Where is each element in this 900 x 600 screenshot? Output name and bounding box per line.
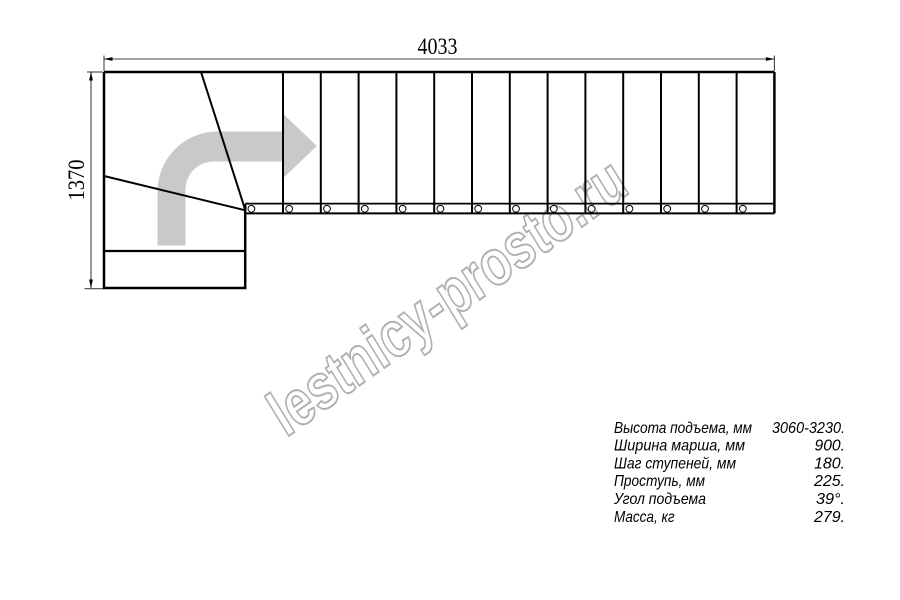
- svg-text:3060-3230.: 3060-3230.: [772, 420, 845, 437]
- svg-text:Масса, кг: Масса, кг: [614, 509, 675, 526]
- svg-text:225.: 225.: [813, 473, 845, 490]
- svg-text:39°.: 39°.: [816, 491, 845, 508]
- svg-text:900.: 900.: [815, 438, 846, 455]
- svg-text:Угол подъема: Угол подъема: [613, 491, 706, 508]
- svg-text:Высота подъема, мм: Высота подъема, мм: [614, 420, 752, 437]
- svg-text:Шаг ступеней, мм: Шаг ступеней, мм: [614, 455, 736, 472]
- svg-text:Проступь, мм: Проступь, мм: [614, 473, 705, 490]
- svg-text:279.: 279.: [813, 509, 845, 526]
- svg-text:Ширина марша, мм: Ширина марша, мм: [614, 438, 745, 455]
- svg-text:1370: 1370: [64, 160, 89, 201]
- svg-text:lestnicy-prosto.ru: lestnicy-prosto.ru: [256, 142, 639, 450]
- svg-text:4033: 4033: [418, 34, 458, 59]
- svg-text:180.: 180.: [814, 455, 845, 472]
